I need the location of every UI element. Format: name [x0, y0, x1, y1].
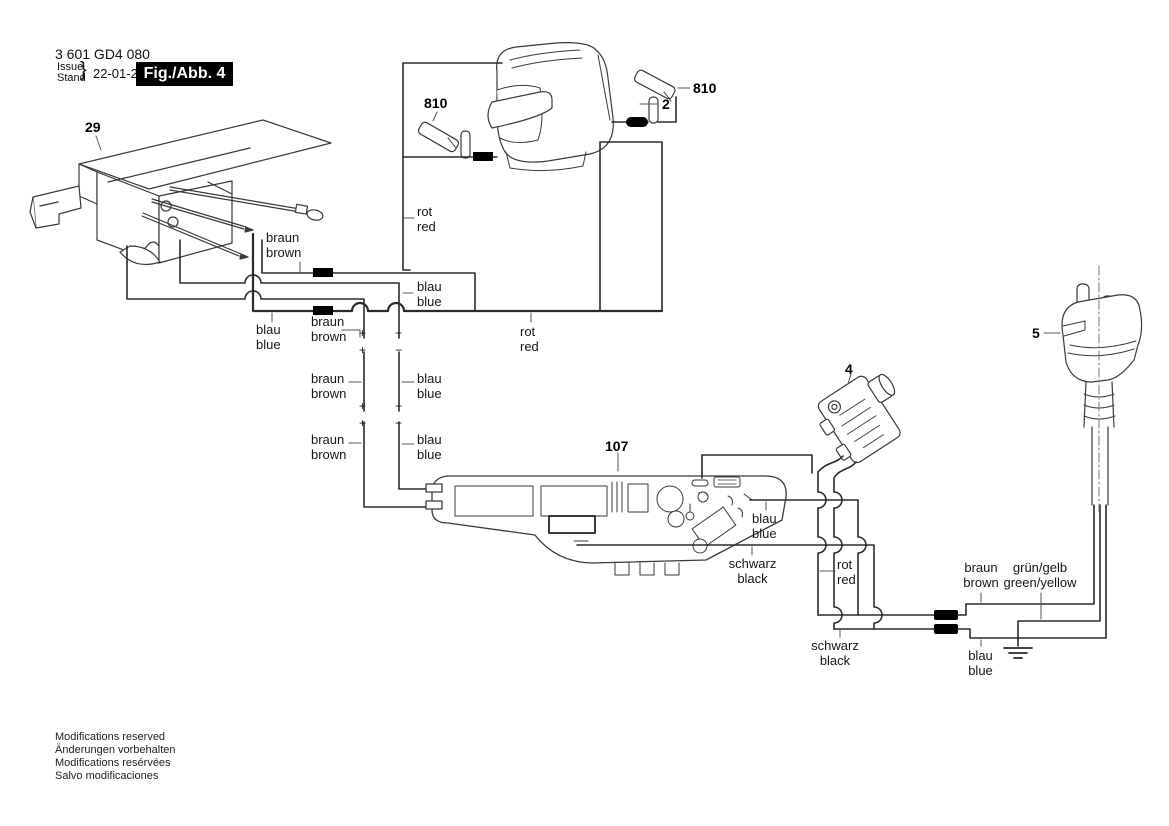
brace-glyph: } [80, 59, 87, 82]
plug-drawing [1062, 266, 1142, 512]
suppressor-drawing [809, 364, 918, 470]
sleeve-marker [473, 152, 493, 161]
crimp-connector [626, 117, 648, 127]
leader-ticks [96, 88, 1060, 646]
wire-label-schwarz-pcb: schwarzblack [715, 556, 790, 586]
part-label-suppressor: 4 [845, 361, 853, 377]
footer-line-es: Salvo modificaciones [55, 770, 158, 782]
figure-label-box: Fig./Abb. 4 [136, 62, 233, 86]
wire-label-blau-v2: blaublue [417, 432, 442, 462]
part-label-field: 2 [662, 96, 670, 112]
minus-mark: − [395, 400, 402, 412]
wire-label-schwarz-bottom: schwarzblack [800, 638, 870, 668]
minus-mark: − [395, 327, 402, 339]
crimp-connector [934, 610, 958, 620]
footer-notice: Modifications reserved Änderungen vorbeh… [55, 731, 175, 783]
part-label-switch: 29 [85, 119, 101, 135]
plus-mark: + [359, 400, 366, 412]
wire-pcb-to-suppressor [702, 455, 812, 478]
wire-blau-vertical [180, 240, 430, 489]
wire-suppressor-out-rot [818, 456, 843, 615]
wire-label-braun-mid: braunbrown [311, 314, 346, 344]
plus-mark: + [359, 327, 366, 339]
wire-label-rot-bottom: rotred [837, 557, 856, 587]
crimp-connector [934, 624, 958, 634]
wire-label-blau-left: blaublue [256, 322, 281, 352]
minus-mark: − [395, 344, 402, 356]
part-label-brush-left: 810 [424, 95, 447, 111]
wire-label-braun-top: braunbrown [266, 230, 301, 260]
minus-mark: − [395, 417, 402, 429]
field-drawing [488, 43, 613, 171]
footer-line-fr: Modifications resérvées [55, 757, 171, 769]
wire-label-blau-plug: blaublue [948, 648, 1013, 678]
wire-label-blau-pcb: blaublue [752, 511, 777, 541]
part-label-plug: 5 [1032, 325, 1040, 341]
wire-braun-vertical [127, 246, 430, 507]
part-label-pcb: 107 [605, 438, 628, 454]
plus-mark: + [359, 344, 366, 356]
wire-label-rot-mid: rotred [520, 324, 539, 354]
wiring-diagram-page: 3 601 GD4 080 Issue Stand } 22-01-26 Fig… [0, 0, 1169, 826]
footer-line-en: Modifications reserved [55, 731, 165, 743]
wire-label-braun-v1: braunbrown [311, 371, 346, 401]
wire-label-rot-top: rotred [417, 204, 436, 234]
wire-label-blau-top: blaublue [417, 279, 442, 309]
brush-left-drawing [417, 121, 470, 158]
wire-label-braun-v2: braunbrown [311, 432, 346, 462]
part-number: 3 601 GD4 080 [55, 46, 150, 62]
wiring-diagram-canvas [0, 0, 1169, 826]
part-label-brush-right: 810 [693, 80, 716, 96]
wire-rot-top [403, 63, 502, 270]
footer-line-de: Änderungen vorbehalten [55, 744, 175, 756]
plus-mark: + [359, 417, 366, 429]
wire-label-blau-v1: blaublue [417, 371, 442, 401]
sleeve-marker [313, 268, 333, 277]
wire-label-gruen-gelb: grün/gelbgreen/yellow [1000, 560, 1080, 590]
